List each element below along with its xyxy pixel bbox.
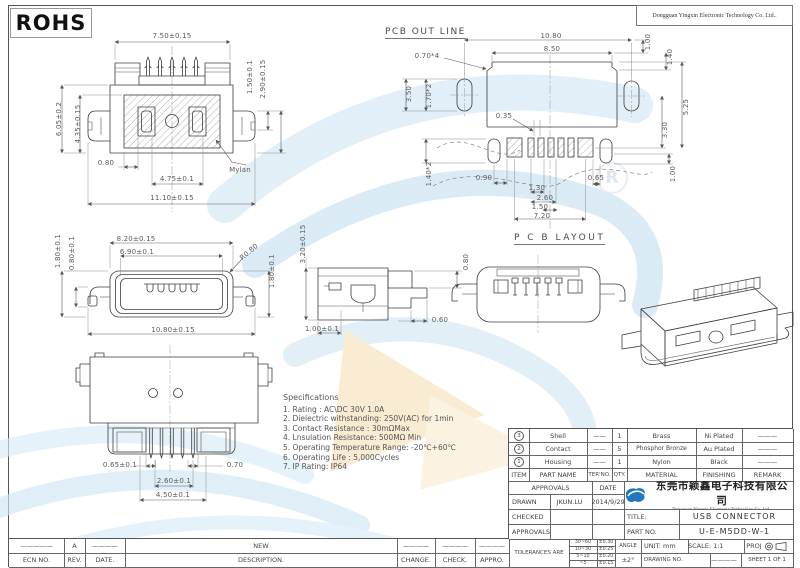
- tol-value: ±0.15: [597, 560, 616, 568]
- dim-front-080-left: 0.80±0.1: [68, 236, 76, 270]
- rev-appro-label: APPRO.: [475, 553, 510, 568]
- checked-name: [547, 509, 593, 525]
- bottom-view-pins: [512, 278, 562, 295]
- specifications-title: Specifications: [283, 393, 518, 403]
- dim-top-right-big: 2.90±0.15: [259, 60, 267, 99]
- bom-part-name: Housing: [529, 455, 588, 469]
- rev-appro-value: ————: [475, 539, 510, 554]
- title-value: USB CONNECTOR: [676, 509, 794, 525]
- dim-top-slot: 4.75±0.1: [160, 175, 194, 183]
- bom-qty: 1: [612, 455, 628, 469]
- watermark-registered-mark: R: [605, 168, 618, 188]
- dim-pcb-130: 1.30: [529, 184, 545, 192]
- company-logo-icon: [624, 486, 648, 504]
- dim-pcb-850: 8.50: [544, 45, 560, 53]
- part-no-label: PART NO.: [624, 524, 680, 540]
- pcb-layout-title: P C B LAYOUT: [514, 233, 605, 245]
- projection-cell: PROJ: [741, 539, 794, 554]
- rohs-badge: ROHS: [10, 8, 92, 38]
- approvals-date: [592, 524, 625, 540]
- part-no-value: U-E-M5DD-W-1: [676, 524, 794, 540]
- rev-check-label: CHECK.: [435, 553, 476, 568]
- title-label: TITLE:: [624, 509, 680, 525]
- pcb-pads: [488, 138, 612, 163]
- bom-header-part: PART NAME: [529, 468, 588, 482]
- angle-label: ANGLE: [615, 539, 642, 554]
- tolerance-table: 30~60 ±0.30 10~30 ±0.25 5~10 ±0.20 ~5 ±0…: [569, 539, 615, 567]
- dim-side-320: 3.20±0.15: [299, 225, 307, 264]
- checked-date: [592, 509, 625, 525]
- dim-front-820: 8.20±0.15: [117, 235, 156, 243]
- sheet-label: SHEET 1 OF 1: [741, 553, 794, 568]
- rev-ecn-value: —————: [9, 539, 65, 554]
- bom-item-num: 1: [509, 455, 530, 469]
- company-logo-cell: 东莞市颖鑫电子科技有限公司 Dongguan Yingxin Electroni…: [624, 481, 794, 510]
- dim-rear-065: 0.65±0.1: [103, 461, 137, 469]
- dim-front-180-right: 1.80±0.1: [268, 254, 276, 288]
- company-name-top: Dongguan Yingxin Electronic Technology C…: [636, 5, 793, 26]
- dim-pcb-035: 0.35: [496, 112, 512, 120]
- date-header: DATE: [592, 481, 625, 495]
- rev-check-value: ————: [435, 539, 476, 554]
- dim-top-height: 6.05±0.2: [55, 102, 63, 136]
- pcb-outline-title: PCB OUT LINE: [385, 27, 466, 39]
- bom-qty: 1: [612, 429, 628, 443]
- dim-pcb-170x2: 1.70*2: [425, 84, 433, 109]
- bom-header-ter: TER'NO.: [587, 468, 613, 482]
- dim-pcb-1080: 10.80: [540, 32, 561, 40]
- bom-material: Brass: [627, 429, 697, 443]
- spec-item: 2. Dielectric withstanding: 250V(AC) for…: [283, 414, 518, 424]
- dim-pcb-260: 2.60: [537, 194, 553, 202]
- rev-date-label: DATE.: [85, 553, 126, 568]
- revision-strip: ————— A ———— NEW ———— ———— ———— ECN NO. …: [8, 538, 509, 567]
- bom-header-finishing: FINISHING: [696, 468, 743, 482]
- spec-item: 6. Operating Life : 5,000Cycles: [283, 453, 518, 463]
- dim-top-total-width: 11.10±0.15: [150, 194, 194, 202]
- drawn-date: 2014/9/29: [592, 494, 625, 510]
- bom-finishing: Ni Plated: [696, 429, 743, 443]
- angle-value: ±2°: [615, 553, 642, 568]
- title-block: 3 Shell —— 1 Brass Ni Plated ——— 2 Conta…: [508, 428, 793, 567]
- dim-pcb-525: 5.25: [682, 99, 690, 115]
- dim-side-080: 0.80: [462, 254, 470, 270]
- rev-description-value: NEW: [125, 539, 398, 554]
- bom-remark: ———: [742, 429, 794, 443]
- bom-remark: ———: [742, 455, 794, 469]
- bom-header-item: ITEM: [509, 468, 530, 482]
- bom-finishing: Black: [696, 455, 743, 469]
- note-mylar: Mylan: [229, 166, 251, 174]
- tolerances-label: TOLERANCES ARE: [509, 539, 570, 568]
- approvals-name: [547, 524, 593, 540]
- dim-pcb-140: 1.40: [666, 49, 674, 65]
- rev-description-label: DESCRIPTION.: [125, 553, 398, 568]
- bom-remark: ———: [742, 442, 794, 456]
- drawn-label: DRAWN: [509, 494, 551, 510]
- rev-change-value: ————: [397, 539, 436, 554]
- tol-range: ~5: [569, 560, 598, 568]
- projection-symbol-icon: [764, 542, 788, 551]
- dim-top-inner-height: 4.35±0.15: [74, 105, 82, 144]
- dim-pcb-150: 1.50: [532, 203, 548, 211]
- bom-ter-no: ——: [587, 442, 613, 456]
- bom-part-name: Shell: [529, 429, 588, 443]
- spec-item: 7. IP Rating: IP64: [283, 462, 518, 472]
- dim-pcb-140x2: 1.40*2: [425, 162, 433, 187]
- drawing-sheet: .ln{stroke:#3c3c3c;stroke-width:0.8;fill…: [0, 0, 800, 568]
- dim-pcb-350: 3.50: [405, 86, 413, 102]
- drawing-no-value: ————: [707, 553, 742, 568]
- dim-top-edge: 0.80: [98, 159, 114, 167]
- bom-header-remark: REMARK: [742, 468, 794, 482]
- spec-item: 4. Lnsulation Resistance: 500MΩ Min: [283, 433, 518, 443]
- dim-top-pin-span: 7.50±0.15: [153, 32, 192, 40]
- rev-rev-value: A: [64, 539, 86, 554]
- spec-item: 5. Operating Temperature Range: -20℃+60℃: [283, 443, 518, 453]
- dim-side-060: 0.60: [432, 316, 448, 324]
- bom-header-material: MATERIAL: [627, 468, 697, 482]
- dim-side-100: 1.00±0.1: [305, 325, 339, 333]
- proj-label: PROJ: [746, 542, 761, 550]
- dim-pcb-090: 0.90: [476, 174, 492, 182]
- drawn-name: JKUN.LU: [547, 494, 593, 510]
- bom-part-name: Contact: [529, 442, 588, 456]
- dim-rear-070: 0.70: [227, 461, 243, 469]
- bom-header-qty: QTY.: [612, 468, 628, 482]
- checked-label: CHECKED: [509, 509, 551, 525]
- rev-rev-label: REV.: [64, 553, 86, 568]
- rev-ecn-label: ECN NO.: [9, 553, 65, 568]
- rev-date-value: ————: [85, 539, 126, 554]
- spec-item: 3. Contact Resistance : 30mΩMax: [283, 424, 518, 434]
- dim-pcb-330: 3.30: [661, 122, 669, 138]
- spec-item: 1. Rating : AC\DC 30V 1.0A: [283, 405, 518, 415]
- bom-material: Phosphor Bronze: [627, 442, 697, 456]
- dim-front-690: 6.90±0.1: [120, 248, 154, 256]
- company-name-cn: 东莞市颖鑫电子科技有限公司: [651, 481, 793, 508]
- bom-material: Nylon: [627, 455, 697, 469]
- rev-change-label: CHANGE.: [397, 553, 436, 568]
- unit-cell: UNIT: mm: [641, 539, 689, 554]
- scale-cell: SCALE: 1:1: [685, 539, 745, 554]
- dim-top-right-small: 1.50±0.1: [246, 60, 254, 94]
- specifications-block: Specifications 1. Rating : AC\DC 30V 1.0…: [283, 393, 518, 472]
- dim-pcb-070x4: 0.70*4: [415, 52, 440, 60]
- dim-pcb-065: 0.65: [588, 174, 604, 182]
- dim-rear-450: 4.50±0.1: [156, 491, 190, 499]
- approvals-label: APPROVALS: [509, 524, 551, 540]
- bom-item-num: 3: [509, 429, 530, 443]
- drawing-no-label: DRAWING NO.: [641, 553, 711, 568]
- dim-rear-260: 2.60±0.1: [157, 477, 191, 485]
- bom-qty: 5: [612, 442, 628, 456]
- view-bottom: [452, 255, 625, 333]
- dim-pcb-100-bottom: 1.00: [669, 166, 677, 182]
- front-contacts: [144, 284, 200, 292]
- dim-front-1080: 10.80±0.15: [151, 326, 195, 334]
- bom-item-num: 2: [509, 442, 530, 456]
- bom-ter-no: ——: [587, 455, 613, 469]
- dim-pcb-100-top: 1.00: [644, 34, 652, 50]
- approvals-header: APPROVALS: [509, 481, 593, 495]
- dim-front-180-left: 1.80±0.1: [54, 234, 62, 268]
- bom-ter-no: ——: [587, 429, 613, 443]
- dim-pcb-720: 7.20: [534, 212, 550, 220]
- bom-finishing: Au Plated: [696, 442, 743, 456]
